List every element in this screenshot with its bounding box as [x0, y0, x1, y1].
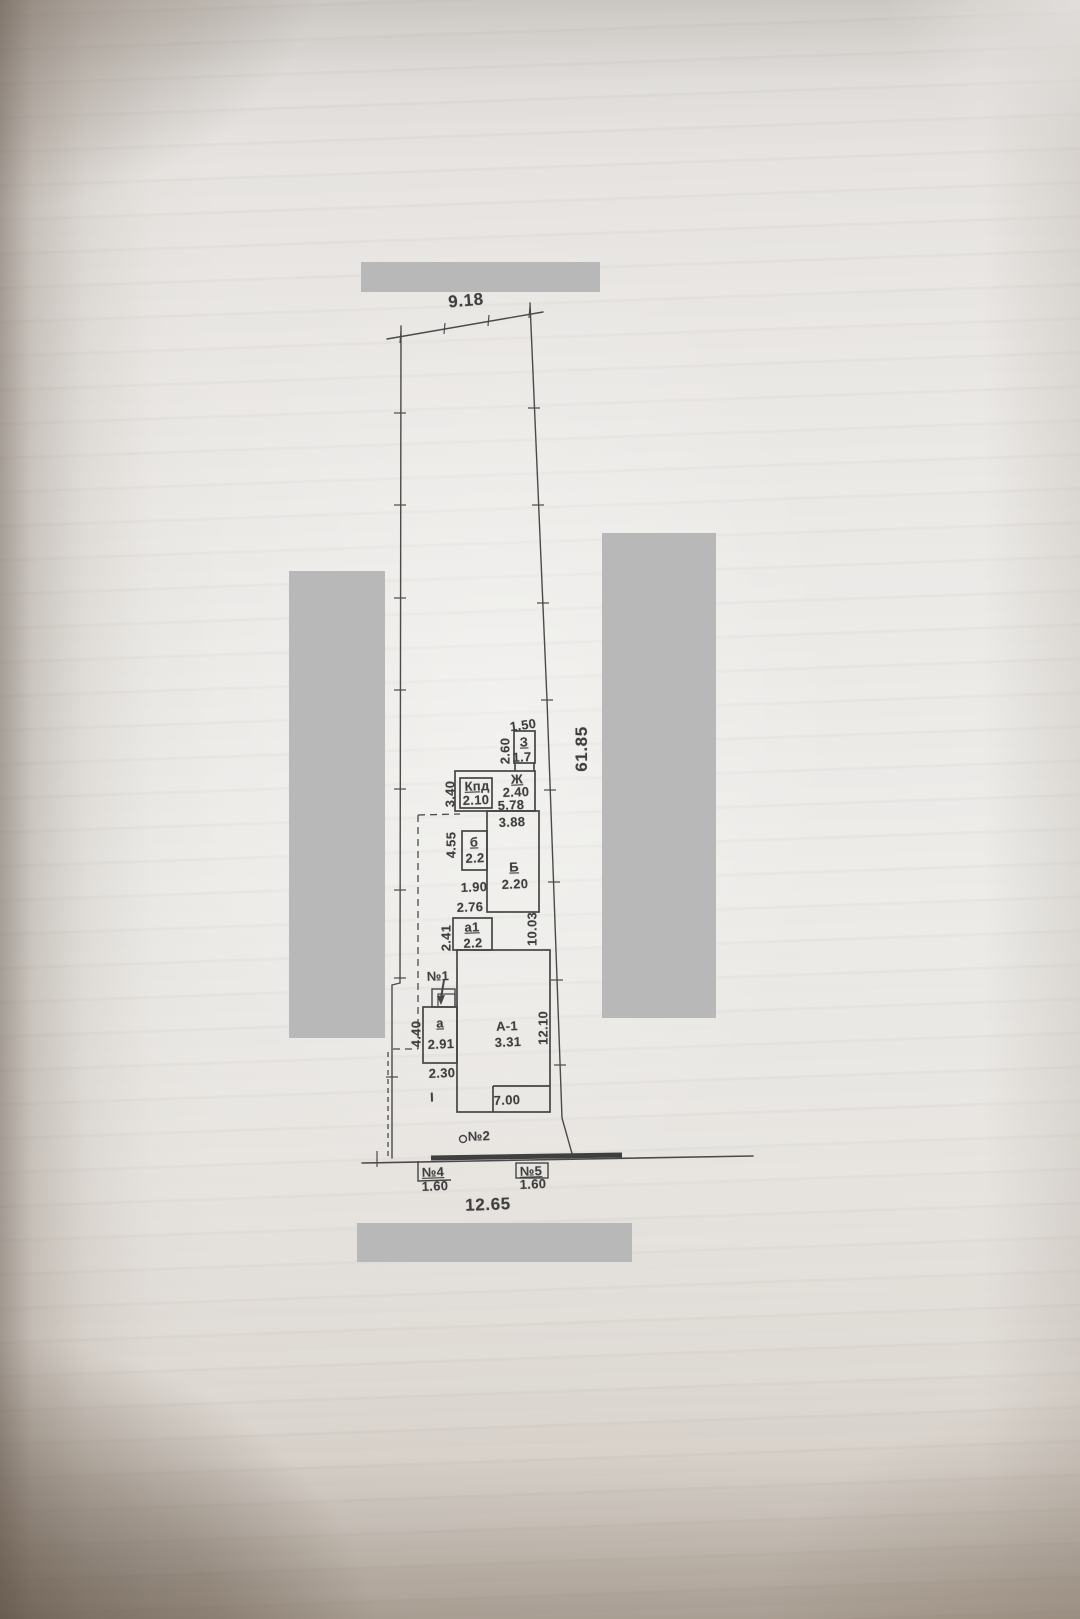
- room-value-house: 3.31: [494, 1034, 521, 1050]
- room-label-a1: а1: [464, 919, 480, 935]
- marker-label-n1: №1: [427, 968, 450, 984]
- room-value-z: 1.7: [512, 749, 531, 765]
- marker-value-n5: 1.60: [519, 1176, 546, 1192]
- photo-of-technical-plan: 9.18 61.85 12.65 1.50 З 1.7 2.60 Ж 2.40 …: [0, 0, 1080, 1619]
- dimension-house-bottom: 7.00: [493, 1092, 520, 1108]
- room-value-b: 2.20: [501, 876, 528, 892]
- dimension-a1-top: 2.76: [456, 899, 483, 915]
- room-value-a1: 2.2: [463, 935, 482, 951]
- parcel-boundary-left: [392, 326, 401, 1158]
- dimension-a-left: 4.40: [409, 1021, 424, 1048]
- room-label-house: А-1: [496, 1018, 518, 1034]
- dimension-house-right: 12.10: [536, 1011, 551, 1045]
- room-label-z: З: [520, 734, 529, 749]
- parcel-boundary-bottom-thick: [431, 1155, 622, 1158]
- dimension-kpd-left: 3.40: [443, 781, 458, 808]
- room-value-b-small: 2.2: [465, 850, 484, 866]
- dimension-b-top: 3.88: [498, 814, 525, 830]
- tick-top-3: [488, 315, 489, 326]
- tick-top-4: [529, 306, 530, 318]
- marker-value-n4: 1.60: [421, 1178, 448, 1194]
- dimension-zh-bottom: 5.78: [497, 797, 524, 813]
- marker-label-roman-i: I: [430, 1089, 434, 1104]
- dimension-parcel-bottom-width: 12.65: [465, 1194, 511, 1216]
- room-label-b: Б: [509, 859, 519, 874]
- site-plan-drawing: [0, 0, 1080, 1619]
- tick-top-2: [444, 323, 445, 334]
- dimension-a1-left: 2.41: [439, 925, 454, 952]
- dimension-b-small-bottom: 1.90: [460, 879, 487, 895]
- room-label-a: а: [436, 1015, 444, 1030]
- room-value-a: 2.91: [427, 1036, 454, 1052]
- dimension-b-right: 10.03: [525, 912, 540, 946]
- dashed-line-top: [418, 814, 460, 815]
- room-value-kpd: 2.10: [462, 792, 489, 808]
- dimension-a-bottom: 2.30: [428, 1065, 455, 1081]
- dimension-parcel-top-width: 9.18: [447, 289, 484, 312]
- marker-label-n2: №2: [468, 1128, 491, 1144]
- marker-n2-circle: [460, 1136, 467, 1143]
- parcel-boundary-top: [387, 312, 543, 339]
- dimension-parcel-right-length: 61.85: [572, 726, 592, 772]
- dimension-z-left: 2.60: [498, 738, 513, 765]
- room-label-b-small: б: [470, 834, 479, 849]
- dimension-b-small-left: 4.55: [444, 832, 459, 859]
